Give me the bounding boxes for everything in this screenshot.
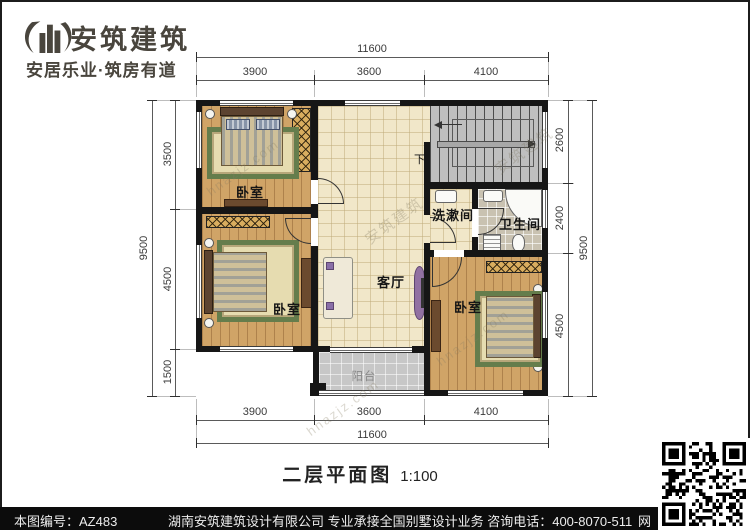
- dim-tick: [170, 396, 180, 397]
- dim-line: [196, 443, 548, 444]
- room-label-living: 客厅: [365, 272, 417, 291]
- wall-segment: [424, 257, 430, 396]
- dim-bottom-seg-1: 3900: [227, 406, 283, 418]
- room-label-washroom: 洗漱间: [427, 205, 479, 224]
- dim-tick: [170, 209, 180, 210]
- footer-company-line: 湖南安筑建筑设计有限公司 专业承接全国别墅设计业务 咨询电话：400-8070-…: [168, 511, 632, 530]
- sofa-cushion: [326, 302, 334, 310]
- dim-tick: [548, 415, 549, 425]
- dim-line: [196, 57, 548, 58]
- nightstand: [205, 109, 215, 119]
- room-label-bathroom: 卫生间: [494, 214, 546, 233]
- room-label-bedroom-sw: 卧室: [261, 299, 313, 318]
- nightstand: [204, 318, 214, 328]
- sofa-cushion: [326, 262, 334, 270]
- window: [448, 390, 523, 396]
- dim-tick: [548, 75, 549, 85]
- wall-segment: [424, 182, 548, 189]
- dim-tick: [196, 52, 197, 62]
- window: [220, 346, 293, 352]
- room-label-bedroom-se: 卧室: [442, 297, 494, 316]
- footer-web-label: 网: [638, 511, 651, 530]
- sink: [483, 190, 503, 202]
- pillow: [256, 119, 280, 130]
- door-leaf: [318, 203, 344, 204]
- dim-tick: [587, 396, 597, 397]
- dim-left-seg-3: 1500: [162, 352, 174, 392]
- nightstand: [204, 238, 214, 248]
- dim-tick: [548, 438, 549, 448]
- qr-code-image: [662, 442, 746, 526]
- company-tagline: 安居乐业·筑房有道: [26, 56, 177, 81]
- window: [542, 292, 548, 338]
- dim-tick: [548, 52, 549, 62]
- bed: [213, 252, 267, 312]
- dim-line: [196, 420, 548, 421]
- wall-segment: [424, 250, 434, 257]
- wall-segment: [464, 250, 548, 257]
- footer-bar: 本图编号：AZ483 湖南安筑建筑设计有限公司 专业承接全国别墅设计业务 咨询电…: [0, 507, 750, 530]
- dim-right-seg-3: 4500: [554, 306, 566, 346]
- stair-arrow-line: [440, 124, 462, 125]
- dim-tick: [147, 396, 157, 397]
- door-leaf: [430, 242, 456, 243]
- room-label-bedroom-nw: 卧室: [224, 182, 276, 201]
- drawing-title: 二层平面图1:100: [250, 460, 470, 487]
- dim-tick: [587, 100, 597, 101]
- balcony-sliding-door: [330, 347, 412, 353]
- dim-tick: [563, 100, 573, 101]
- dim-right-seg-1: 2600: [554, 120, 566, 160]
- wardrobe: [206, 216, 270, 228]
- wall-segment: [202, 207, 311, 214]
- window: [196, 245, 202, 318]
- window: [345, 100, 400, 106]
- dim-tick: [563, 183, 573, 184]
- pillow: [226, 119, 250, 130]
- room-label-balcony: 阳台: [338, 368, 390, 384]
- dim-tick: [196, 415, 197, 425]
- dim-tick: [424, 415, 425, 425]
- wall-segment: [311, 204, 318, 218]
- dim-bottom-seg-3: 4100: [458, 406, 514, 418]
- dim-line: [175, 100, 176, 396]
- stair-direction-arrow-icon: [528, 140, 536, 148]
- sink: [435, 190, 457, 203]
- drawing-title-text: 二层平面图: [282, 465, 392, 486]
- dim-tick: [563, 253, 573, 254]
- dim-line: [568, 100, 569, 396]
- company-logo-icon: [22, 16, 72, 60]
- window: [542, 112, 548, 168]
- window: [220, 100, 293, 106]
- wardrobe: [486, 261, 542, 273]
- dim-right-seg-2: 2400: [554, 198, 566, 238]
- bed-headboard: [220, 107, 284, 116]
- dim-top-seg-1: 3900: [227, 66, 283, 78]
- dim-tick: [563, 396, 573, 397]
- nightstand: [287, 109, 297, 119]
- sheet-border-top: [0, 0, 750, 2]
- dim-bottom-seg-2: 3600: [341, 406, 397, 418]
- door-leaf: [285, 218, 311, 219]
- dim-right-total: 9500: [578, 228, 590, 268]
- dim-top-total: 11600: [344, 43, 400, 55]
- qr-code: [658, 438, 750, 530]
- company-name: 安筑建筑: [70, 18, 190, 57]
- dim-bottom-total: 11600: [344, 429, 400, 441]
- dim-tick: [424, 75, 425, 85]
- dim-line: [152, 100, 153, 396]
- door-leaf: [432, 257, 433, 287]
- dim-tick: [170, 100, 180, 101]
- wall-segment: [311, 106, 318, 180]
- dim-tick: [196, 75, 197, 85]
- sheet-border-left: [0, 0, 2, 530]
- cabinet: [431, 300, 441, 352]
- stair-arrow-head-icon: [434, 121, 442, 129]
- drawing-sheet: 安筑建筑 安居乐业·筑房有道: [0, 0, 750, 530]
- drawing-scale: 1:100: [400, 468, 438, 485]
- dim-line: [196, 80, 548, 81]
- window: [196, 112, 202, 168]
- dim-left-seg-1: 3500: [162, 134, 174, 174]
- dim-tick: [196, 438, 197, 448]
- wall-segment: [311, 246, 318, 346]
- dim-line: [592, 100, 593, 396]
- dim-tick: [170, 349, 180, 350]
- dim-tick: [314, 415, 315, 425]
- dim-top-seg-2: 3600: [341, 66, 397, 78]
- dim-tick: [147, 100, 157, 101]
- wall-segment: [412, 346, 424, 353]
- dim-left-seg-2: 4500: [162, 259, 174, 299]
- bed-headboard: [204, 250, 213, 314]
- door-leaf: [478, 208, 504, 209]
- stairs-down-label: 下: [412, 151, 428, 167]
- dim-tick: [314, 75, 315, 85]
- dim-top-seg-3: 4100: [458, 66, 514, 78]
- stair-handrail: [437, 141, 535, 148]
- sheet-number: 本图编号：AZ483: [14, 511, 117, 530]
- dim-left-total: 9500: [138, 228, 150, 268]
- balcony-railing: [319, 390, 424, 396]
